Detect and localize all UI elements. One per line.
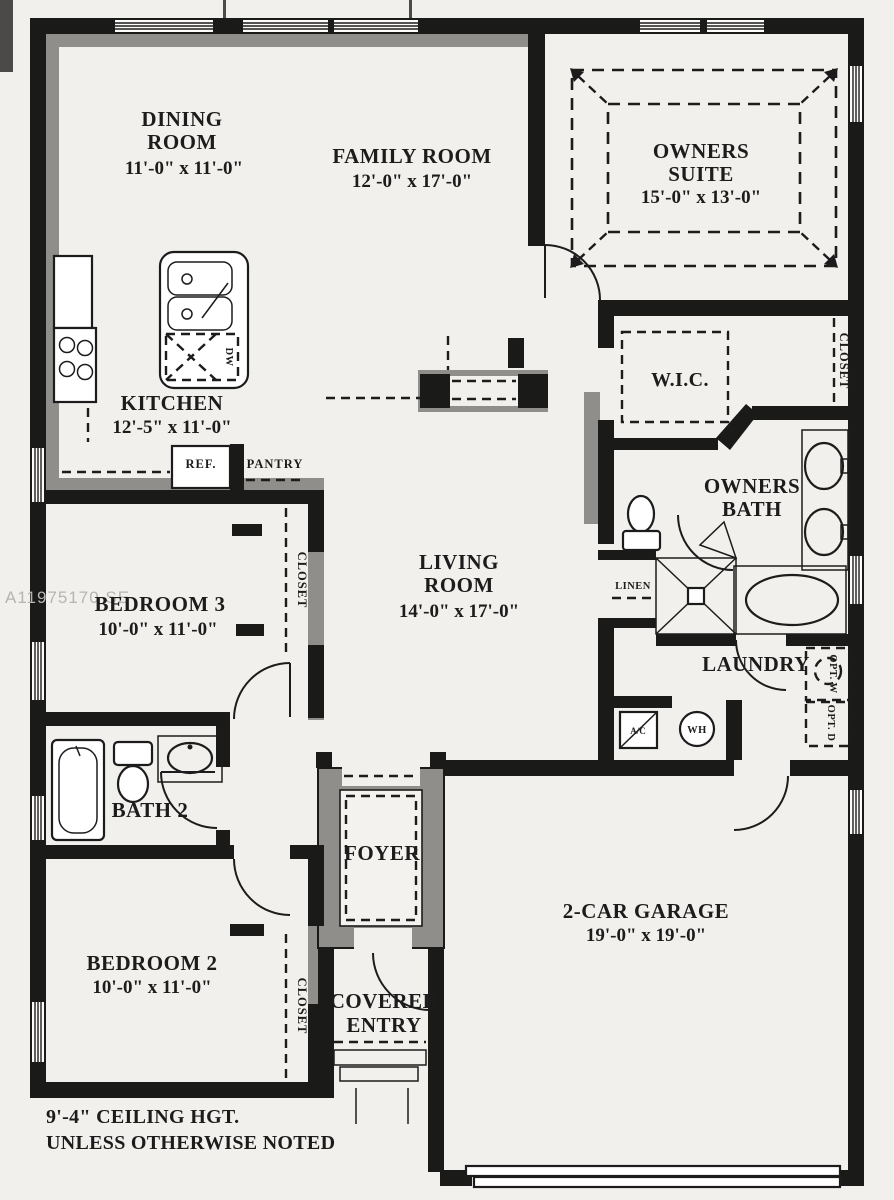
room-label-owners-bath-1: OWNERS <box>704 474 800 498</box>
room-label-covered-entry-1: COVERED <box>330 989 439 1013</box>
room-label-family: FAMILY ROOM <box>332 144 491 168</box>
room-dims-dining: 11'-0" x 11'-0" <box>125 158 243 179</box>
label-bedroom3-closet: CLOSET <box>295 552 309 609</box>
room-label-bedroom2: BEDROOM 2 <box>86 951 217 975</box>
ceiling-note-line2: UNLESS OTHERWISE NOTED <box>46 1132 335 1154</box>
label-pantry: PANTRY <box>247 457 304 471</box>
room-dims-living: 14'-0" x 17'-0" <box>399 601 519 622</box>
room-label-dining-2: ROOM <box>147 130 217 154</box>
room-label-owners-suite-1: OWNERS <box>653 139 749 163</box>
room-label-living-1: LIVING <box>419 550 499 574</box>
sink-island <box>160 252 248 388</box>
label-wh: WH <box>687 725 707 736</box>
bathtub-icon <box>52 740 104 840</box>
window <box>850 556 862 604</box>
room-label-bedroom3: BEDROOM 3 <box>94 592 225 616</box>
room-label-garage: 2-CAR GARAGE <box>563 899 729 923</box>
floor-plan-drawing: A11975170 SE DINING ROOM 11'-0" x 11'-0"… <box>0 0 894 1200</box>
floor-plan-page: A11975170 SE DINING ROOM 11'-0" x 11'-0"… <box>0 0 894 1200</box>
room-label-covered-entry-2: ENTRY <box>346 1013 421 1037</box>
room-dims-owners-suite: 15'-0" x 13'-0" <box>641 187 761 208</box>
window <box>243 20 328 32</box>
room-label-laundry: LAUNDRY <box>702 652 810 676</box>
room-dims-family: 12'-0" x 17'-0" <box>352 171 472 192</box>
window <box>32 642 44 700</box>
window <box>850 790 862 834</box>
window <box>850 66 862 122</box>
label-opt-dryer: OPT. D <box>825 705 836 742</box>
room-label-wic: W.I.C. <box>651 369 709 391</box>
room-dims-bedroom2: 10'-0" x 11'-0" <box>92 977 211 998</box>
range-icon <box>54 328 96 402</box>
window <box>640 20 700 32</box>
label-linen: LINEN <box>615 581 651 592</box>
window <box>32 796 44 840</box>
room-label-foyer: FOYER <box>344 841 420 865</box>
scan-edge-artifact <box>0 0 13 72</box>
room-dims-bedroom3: 10'-0" x 11'-0" <box>98 619 217 640</box>
window <box>115 20 213 32</box>
window <box>334 20 418 32</box>
room-label-bath2: BATH 2 <box>112 798 189 822</box>
window <box>32 1002 44 1062</box>
window <box>707 20 764 32</box>
label-ac: A/C <box>630 726 646 736</box>
label-opt-washer: OPT. W <box>827 654 838 693</box>
label-dw: DW <box>223 347 234 366</box>
room-dims-garage: 19'-0" x 19'-0" <box>586 925 706 946</box>
garage-door <box>466 1166 840 1187</box>
label-bedroom2-closet: CLOSET <box>295 978 309 1035</box>
room-label-living-2: ROOM <box>424 573 494 597</box>
label-owners-closet: CLOSET <box>837 333 851 390</box>
room-dims-kitchen: 12'-5" x 11'-0" <box>112 417 231 438</box>
ceiling-note-line1: 9'-4" CEILING HGT. <box>46 1106 239 1128</box>
room-label-owners-suite-2: SUITE <box>668 162 734 186</box>
counter-section <box>54 256 92 328</box>
room-label-kitchen: KITCHEN <box>121 391 224 415</box>
label-ref: REF. <box>186 457 217 471</box>
window <box>32 448 44 502</box>
room-label-dining-1: DINING <box>141 107 222 131</box>
room-label-owners-bath-2: BATH <box>722 497 782 521</box>
